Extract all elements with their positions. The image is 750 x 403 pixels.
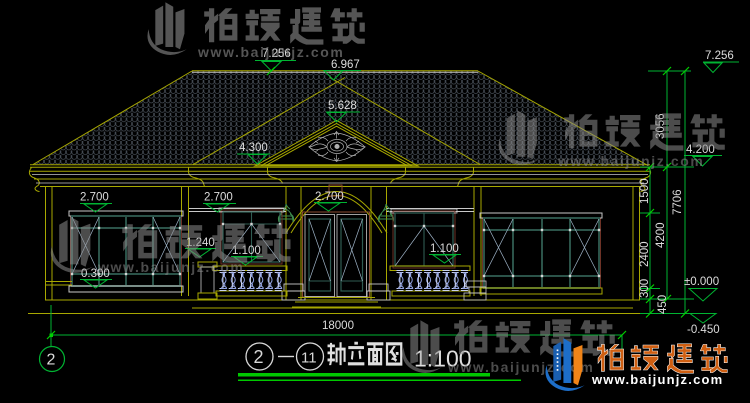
svg-text:7706: 7706: [672, 189, 684, 215]
svg-text:2.700: 2.700: [315, 191, 344, 203]
svg-text:11: 11: [301, 350, 317, 367]
svg-text:2.700: 2.700: [80, 192, 109, 204]
svg-text:www.baijunjz.com: www.baijunjz.com: [557, 153, 704, 169]
svg-text:6.967: 6.967: [331, 59, 360, 71]
svg-text:450: 450: [657, 295, 669, 314]
svg-text:300: 300: [639, 279, 651, 298]
svg-text:www.baijunjz.com: www.baijunjz.com: [591, 372, 723, 387]
svg-text:18000: 18000: [322, 320, 354, 332]
svg-text:2: 2: [254, 347, 264, 367]
svg-text:4200: 4200: [655, 222, 667, 248]
svg-text:1500: 1500: [639, 178, 651, 204]
svg-text:4.300: 4.300: [239, 142, 268, 154]
svg-text:7.256: 7.256: [705, 50, 734, 62]
svg-text:2: 2: [47, 352, 56, 369]
svg-text:1.100: 1.100: [430, 243, 459, 255]
svg-text:±0.000: ±0.000: [684, 276, 719, 288]
svg-text:2.700: 2.700: [204, 192, 233, 204]
svg-text:2400: 2400: [639, 241, 651, 267]
svg-text:-0.450: -0.450: [687, 324, 720, 336]
svg-text:5.628: 5.628: [328, 100, 357, 112]
svg-text:www.baijunjz.com: www.baijunjz.com: [197, 44, 344, 60]
svg-text:www.baijunjz.com: www.baijunjz.com: [447, 359, 594, 375]
svg-text:www.baijunjz.com: www.baijunjz.com: [97, 259, 244, 275]
